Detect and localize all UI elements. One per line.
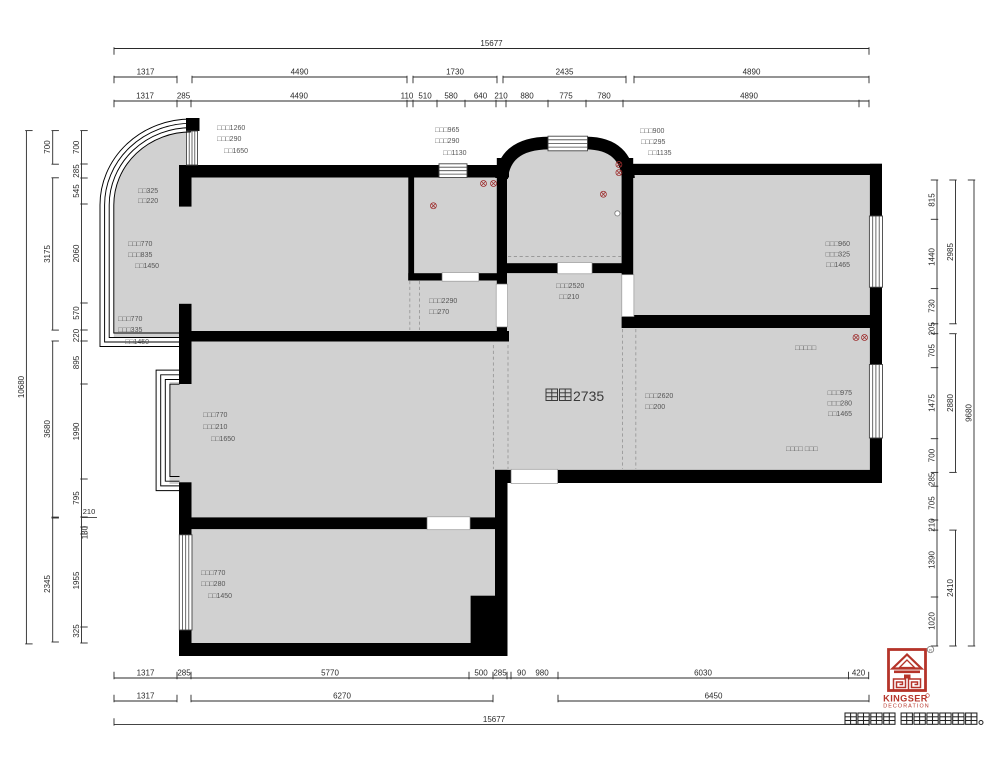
svg-text:10680: 10680 (17, 375, 26, 398)
svg-text:□□□280: □□□280 (201, 581, 225, 588)
svg-text:□□1650: □□1650 (224, 148, 248, 155)
svg-text:4490: 4490 (291, 68, 309, 77)
svg-text:DECORATION: DECORATION (883, 704, 930, 710)
svg-text:2435: 2435 (556, 68, 574, 77)
svg-text:□□1450: □□1450 (135, 263, 159, 270)
svg-text:□□200: □□200 (645, 404, 665, 411)
svg-text:15677: 15677 (483, 715, 506, 724)
svg-text:510: 510 (418, 92, 432, 101)
svg-text:700: 700 (928, 448, 937, 462)
svg-text:□□□295: □□□295 (641, 139, 665, 146)
svg-text:□□□210: □□□210 (203, 424, 227, 431)
svg-text:285: 285 (177, 669, 191, 678)
svg-text:□□□2290: □□□2290 (429, 298, 457, 305)
svg-text:220: 220 (72, 328, 81, 342)
svg-text:795: 795 (72, 491, 81, 505)
svg-text:□□270: □□270 (429, 309, 449, 316)
svg-text:□□□770: □□□770 (203, 412, 227, 419)
svg-text:□□□975: □□□975 (828, 390, 852, 397)
svg-text:895: 895 (72, 355, 81, 369)
svg-text:205: 205 (928, 321, 937, 335)
svg-text:4490: 4490 (290, 92, 308, 101)
svg-text:730: 730 (928, 299, 937, 313)
svg-text:□□□290: □□□290 (435, 138, 459, 145)
svg-text:2735: 2735 (573, 388, 604, 404)
svg-text:□□1465: □□1465 (828, 411, 852, 418)
svg-text:9680: 9680 (965, 404, 974, 422)
svg-text:325: 325 (72, 624, 81, 638)
svg-text:1317: 1317 (137, 68, 155, 77)
svg-text:1390: 1390 (928, 551, 937, 569)
svg-text:1317: 1317 (137, 692, 155, 701)
svg-text:285: 285 (177, 92, 191, 101)
svg-text:2345: 2345 (43, 575, 52, 593)
svg-text:700: 700 (43, 140, 52, 154)
svg-text:□□1450: □□1450 (125, 339, 149, 346)
svg-text:□□220: □□220 (138, 198, 158, 205)
svg-text:210: 210 (83, 507, 96, 516)
svg-text:□□1465: □□1465 (826, 262, 850, 269)
svg-text:15677: 15677 (480, 39, 503, 48)
svg-text:4890: 4890 (743, 68, 761, 77)
svg-text:815: 815 (928, 193, 937, 207)
svg-text:545: 545 (72, 184, 81, 198)
svg-text:□□325: □□325 (138, 188, 158, 195)
svg-text:1317: 1317 (137, 669, 155, 678)
svg-text:□□□770: □□□770 (201, 570, 225, 577)
svg-text:880: 880 (520, 92, 534, 101)
svg-text:KINGSER: KINGSER (883, 694, 928, 704)
svg-text:285: 285 (928, 472, 937, 486)
svg-text:775: 775 (559, 92, 573, 101)
svg-text:2985: 2985 (946, 243, 955, 261)
svg-text:980: 980 (535, 669, 549, 678)
svg-text:210: 210 (928, 518, 937, 532)
svg-text:□□□□□: □□□□□ (795, 345, 817, 352)
svg-text:6030: 6030 (694, 669, 712, 678)
svg-text:□□1130: □□1130 (443, 150, 467, 157)
svg-text:□□□835: □□□835 (128, 252, 152, 259)
svg-text:□□□770: □□□770 (118, 316, 142, 323)
svg-text:□□□2620: □□□2620 (645, 393, 673, 400)
svg-text:□□□335: □□□335 (118, 327, 142, 334)
svg-text:□□□960: □□□960 (826, 241, 850, 248)
svg-text:2410: 2410 (946, 579, 955, 597)
svg-text:□□□280: □□□280 (828, 401, 852, 408)
svg-text:420: 420 (852, 669, 866, 678)
svg-text:□□1135: □□1135 (648, 150, 672, 157)
svg-text:□□□2520: □□□2520 (556, 283, 584, 290)
svg-text:□□1450: □□1450 (208, 593, 232, 600)
svg-text:285: 285 (72, 164, 81, 178)
svg-text:1317: 1317 (136, 92, 154, 101)
svg-text:500: 500 (474, 669, 488, 678)
svg-text:4890: 4890 (740, 92, 758, 101)
svg-text:□□□325: □□□325 (826, 252, 850, 259)
svg-text:90: 90 (517, 669, 526, 678)
svg-text:□□210: □□210 (559, 294, 579, 301)
svg-text:□□□□ □□□: □□□□ □□□ (786, 446, 818, 453)
svg-text:640: 640 (474, 92, 488, 101)
svg-text:3680: 3680 (43, 420, 52, 438)
svg-text:700: 700 (72, 140, 81, 154)
svg-text:285: 285 (493, 669, 507, 678)
svg-text:130: 130 (81, 525, 90, 539)
svg-text:6270: 6270 (333, 692, 351, 701)
svg-text:1955: 1955 (72, 571, 81, 589)
svg-text:□□□900: □□□900 (640, 128, 664, 135)
svg-text:705: 705 (928, 496, 937, 510)
svg-text:1020: 1020 (928, 612, 937, 630)
svg-text:2880: 2880 (946, 394, 955, 412)
svg-text:□□□290: □□□290 (217, 136, 241, 143)
svg-text:1475: 1475 (928, 394, 937, 412)
svg-text:3175: 3175 (43, 245, 52, 263)
svg-text:6450: 6450 (705, 692, 723, 701)
svg-text:□□□1260: □□□1260 (217, 125, 245, 132)
svg-text:110: 110 (401, 92, 414, 101)
svg-text:580: 580 (444, 92, 458, 101)
svg-text:1440: 1440 (928, 248, 937, 266)
svg-text:5770: 5770 (321, 669, 339, 678)
svg-text:□□□770: □□□770 (128, 241, 152, 248)
svg-text:2060: 2060 (72, 244, 81, 262)
svg-text:780: 780 (597, 92, 611, 101)
svg-text:705: 705 (928, 343, 937, 357)
svg-text:1730: 1730 (446, 68, 464, 77)
svg-text:570: 570 (72, 306, 81, 320)
svg-text:1990: 1990 (72, 422, 81, 440)
svg-text:□□1650: □□1650 (211, 436, 235, 443)
svg-text:210: 210 (494, 92, 508, 101)
svg-text:□□□965: □□□965 (435, 127, 459, 134)
